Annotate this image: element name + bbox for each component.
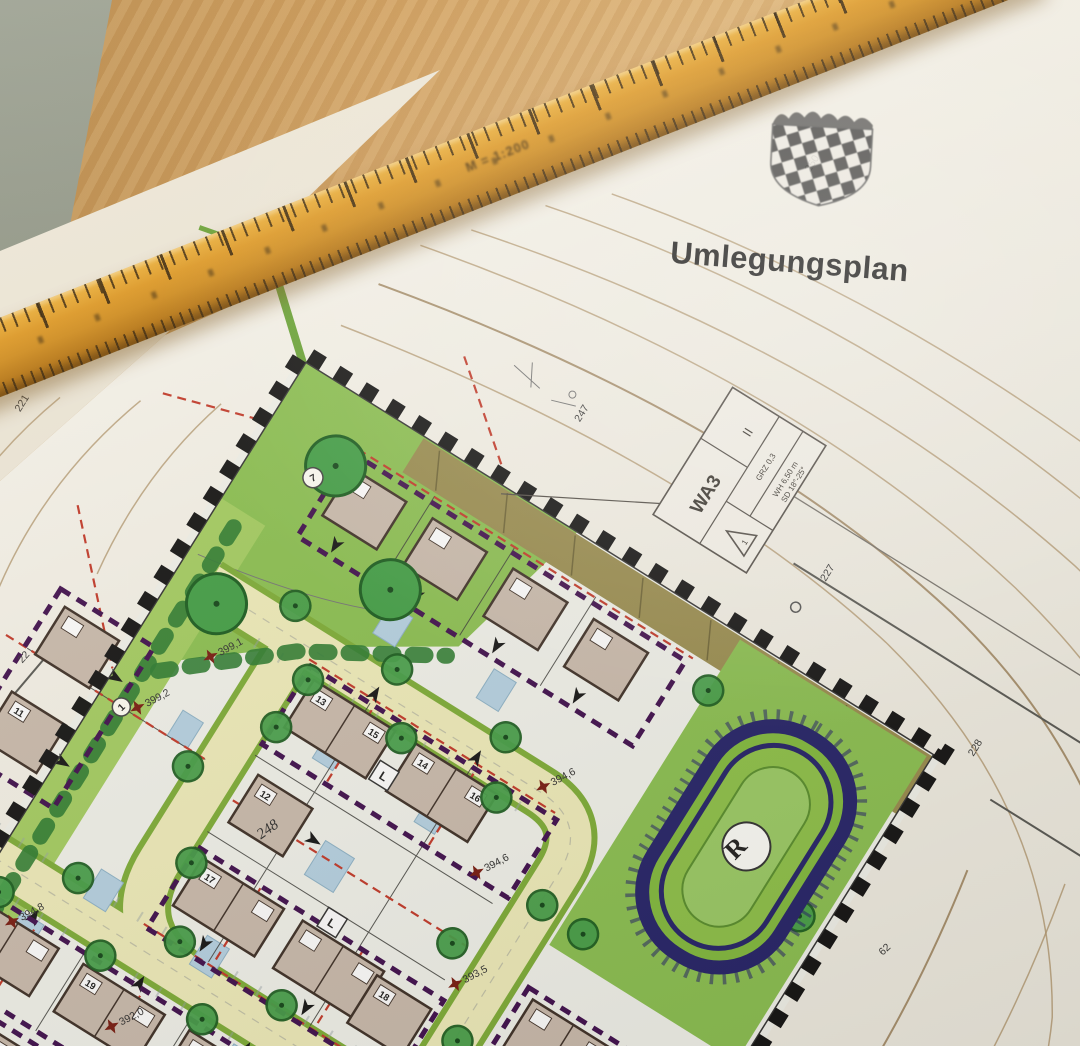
crest-shield-icon <box>769 124 873 208</box>
bavarian-crest <box>745 102 900 219</box>
photo-scene: Umlegungsplan <box>0 0 1080 1046</box>
zoning-legend: WA3 II 1 GRZ 0,3 WH 6,50 m SD 18°-25° <box>653 387 826 572</box>
survey-point-marker <box>789 600 803 614</box>
svg-text:221: 221 <box>12 393 32 414</box>
svg-text:22: 22 <box>16 649 33 666</box>
svg-text:62: 62 <box>876 941 893 958</box>
